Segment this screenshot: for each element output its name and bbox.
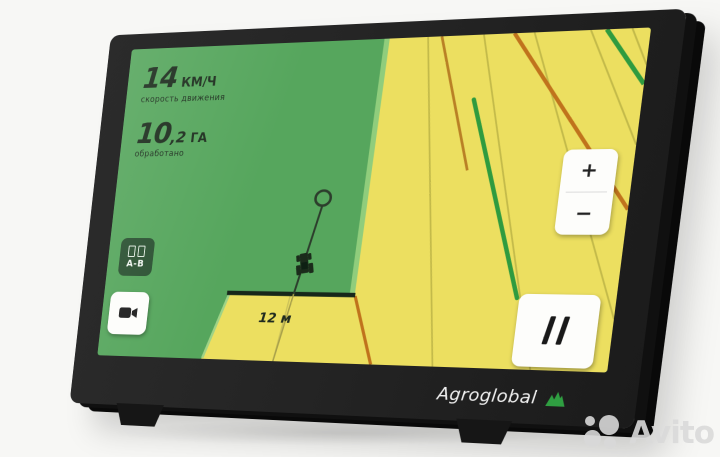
avito-logo-icon	[583, 413, 623, 453]
ab-fields-icon	[128, 245, 146, 256]
area-unit: ГА	[190, 131, 208, 146]
ab-baseline	[227, 293, 355, 295]
minus-icon: −	[574, 202, 594, 225]
brand-label: Agroglobal	[436, 384, 538, 409]
camera-button[interactable]	[107, 292, 150, 335]
area-caption: обработано	[134, 149, 219, 159]
telemetry-block: 14КМ/Ч скорость движения 10,2ГА обработа…	[134, 61, 229, 159]
zoom-panel: + −	[554, 149, 620, 235]
speed-unit: КМ/Ч	[180, 75, 217, 91]
navigation-screen: 12 м 14КМ/Ч скорость движения 10,2ГА обр…	[97, 27, 651, 372]
zoom-out-button[interactable]: −	[554, 193, 614, 235]
area-value: 10	[135, 116, 173, 149]
pause-button[interactable]	[511, 294, 602, 369]
brand-strip: Agroglobal	[436, 384, 568, 410]
watermark-text: Avito	[629, 415, 714, 451]
ab-line-button[interactable]: A-B	[117, 238, 155, 276]
watermark: Avito	[583, 413, 714, 453]
gps-terminal-device: 12 м 14КМ/Ч скорость движения 10,2ГА обр…	[70, 9, 688, 429]
agroglobal-logo-icon	[544, 389, 568, 409]
pause-icon	[541, 317, 570, 346]
distance-label: 12 м	[258, 311, 293, 327]
zoom-in-button[interactable]: +	[559, 149, 619, 192]
plus-icon: +	[579, 159, 599, 182]
photo-background: 12 м 14КМ/Ч скорость движения 10,2ГА обр…	[0, 0, 720, 457]
video-camera-icon	[118, 305, 139, 321]
speed-value: 14	[141, 61, 179, 95]
ab-button-label: A-B	[126, 259, 145, 270]
area-decimal: ,2	[170, 127, 188, 146]
